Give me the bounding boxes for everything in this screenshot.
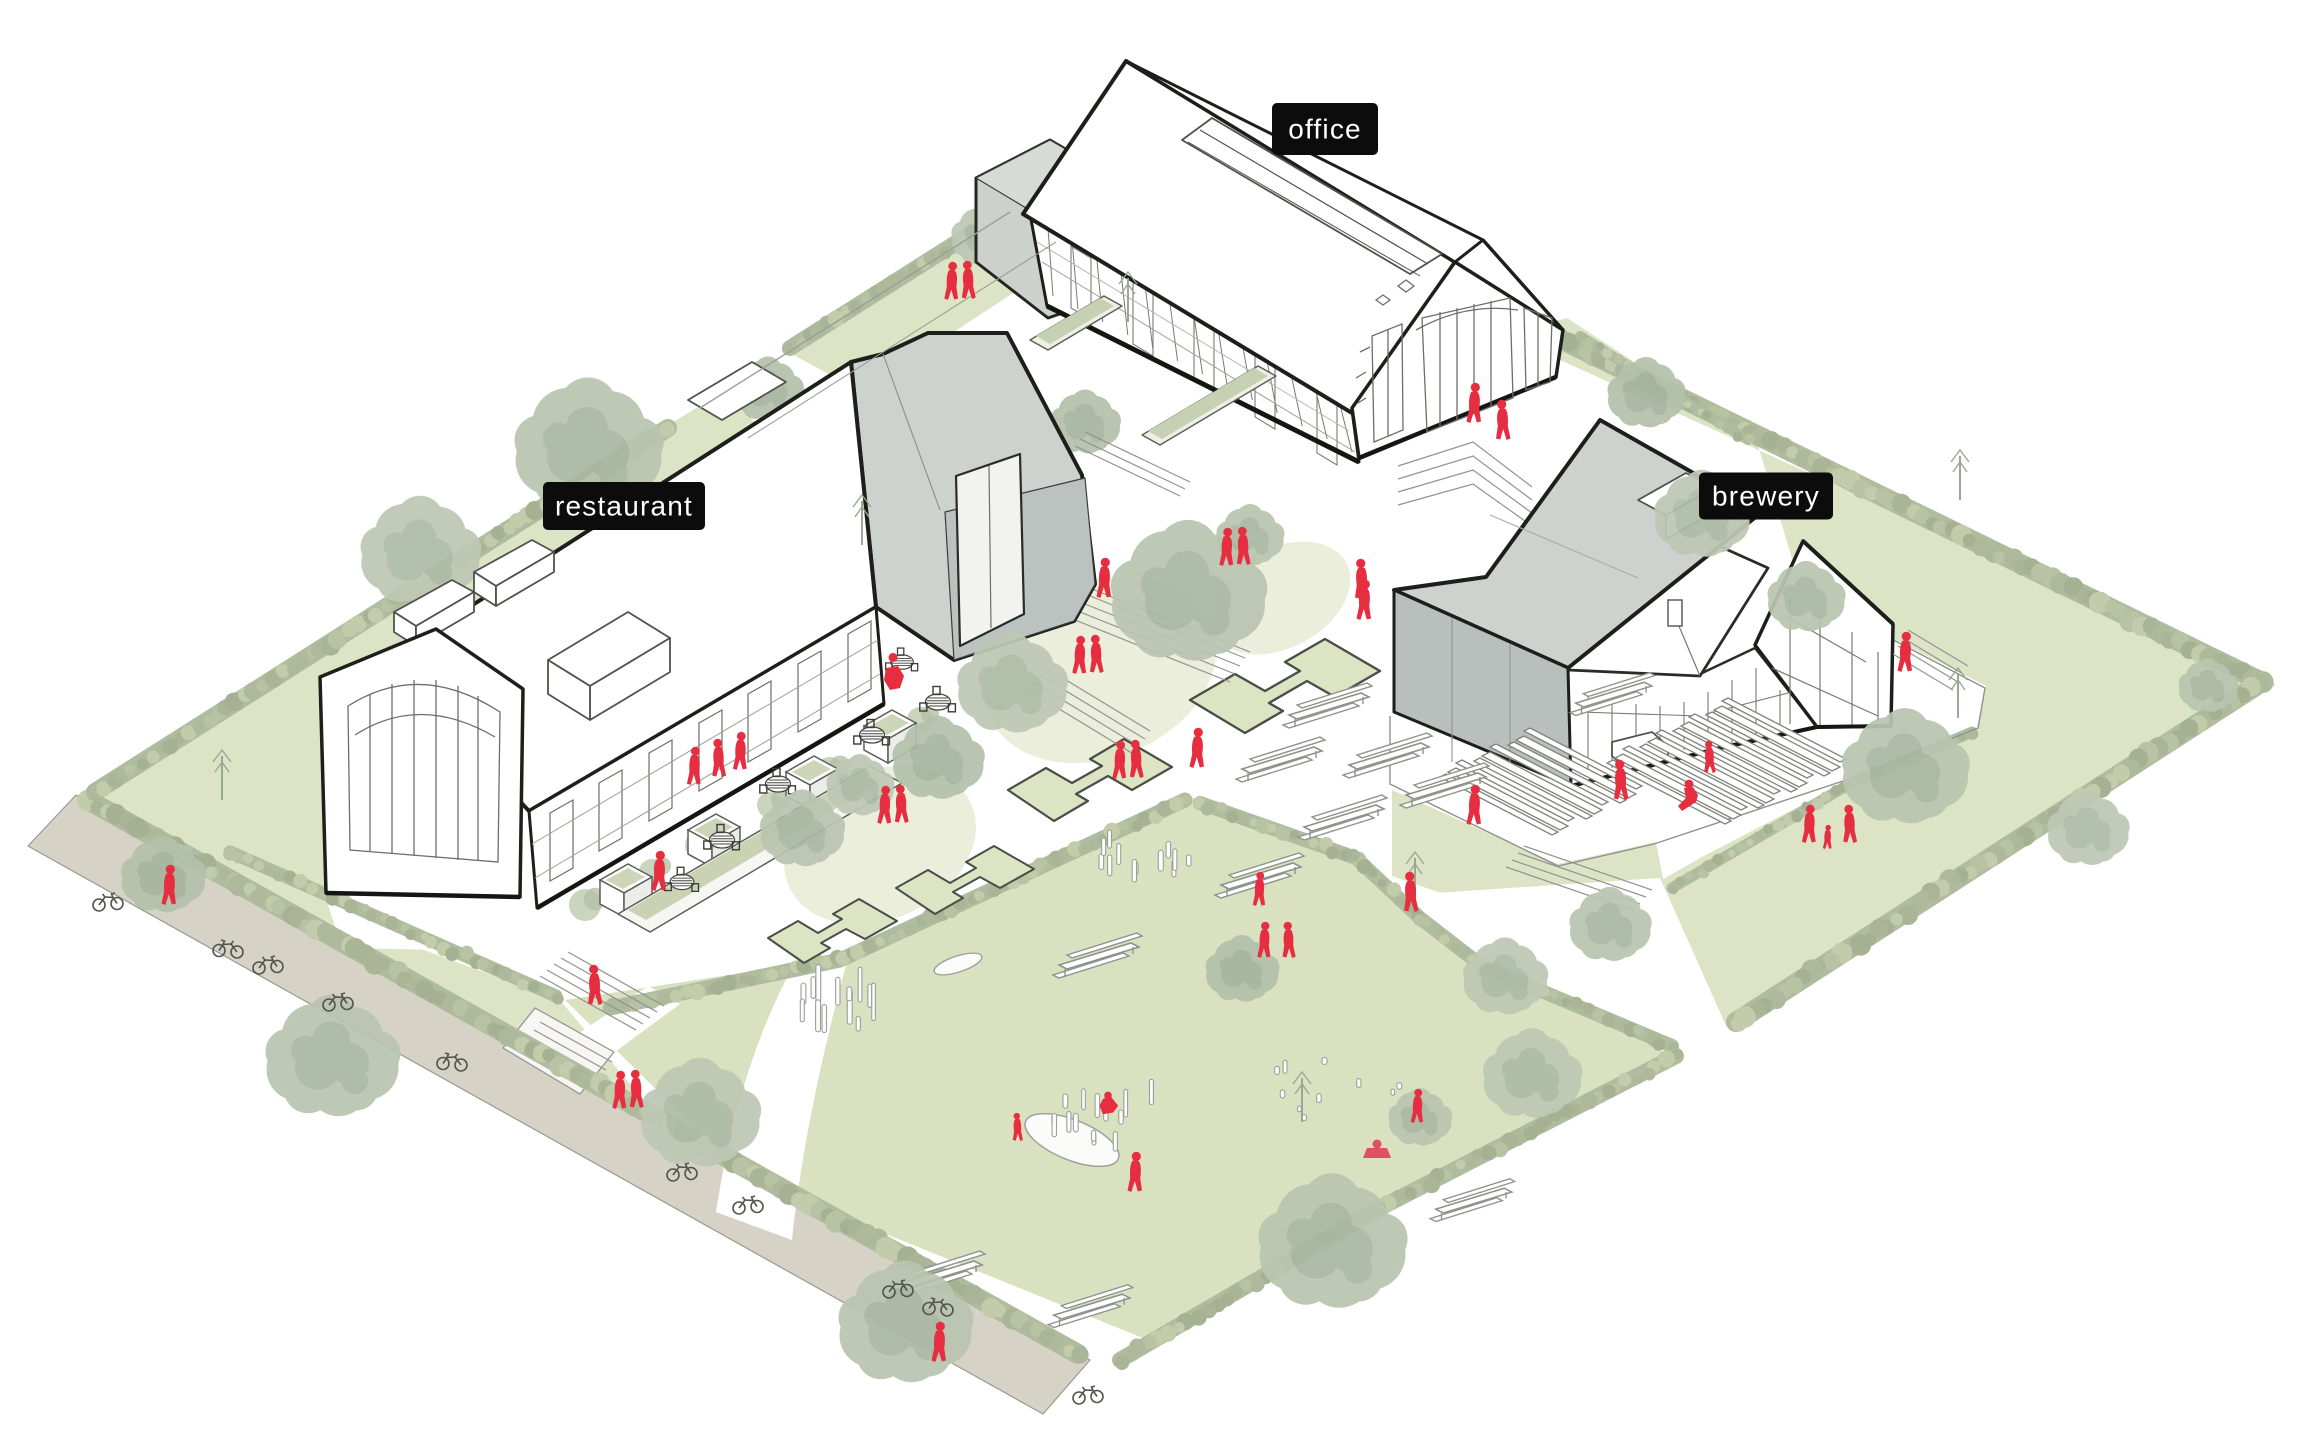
svg-text:brewery: brewery [1712,481,1820,512]
svg-text:office: office [1288,114,1362,145]
svg-text:restaurant: restaurant [555,491,693,522]
